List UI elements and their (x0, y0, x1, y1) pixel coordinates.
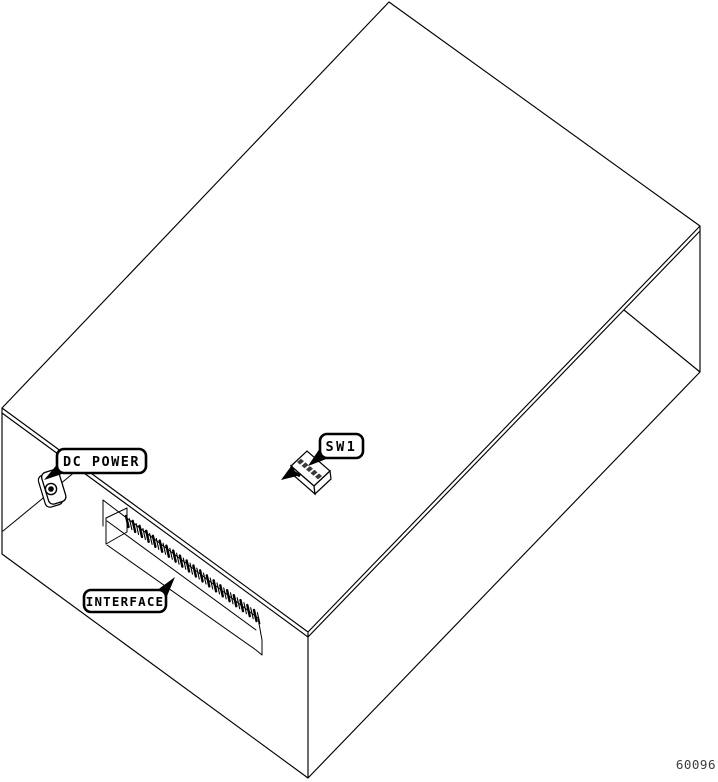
dc-power-callout-label: DC POWER (63, 454, 140, 470)
chassis-outline (2, 2, 700, 778)
chassis-isometric-drawing: DC POWER SW1 INTERFACE 60096 (0, 0, 718, 782)
interface-callout-label: INTERFACE (86, 594, 165, 609)
dc-power-jack-pin (48, 486, 54, 492)
interface-callout: INTERFACE (84, 577, 175, 612)
interface-edge-connector (103, 500, 262, 655)
sw1-callout-label: SW1 (326, 439, 358, 455)
figure-number: 60096 (676, 757, 716, 772)
technical-figure: DC POWER SW1 INTERFACE 60096 (0, 0, 718, 782)
sw1-callout: SW1 (308, 434, 363, 466)
box-edges (2, 2, 700, 778)
